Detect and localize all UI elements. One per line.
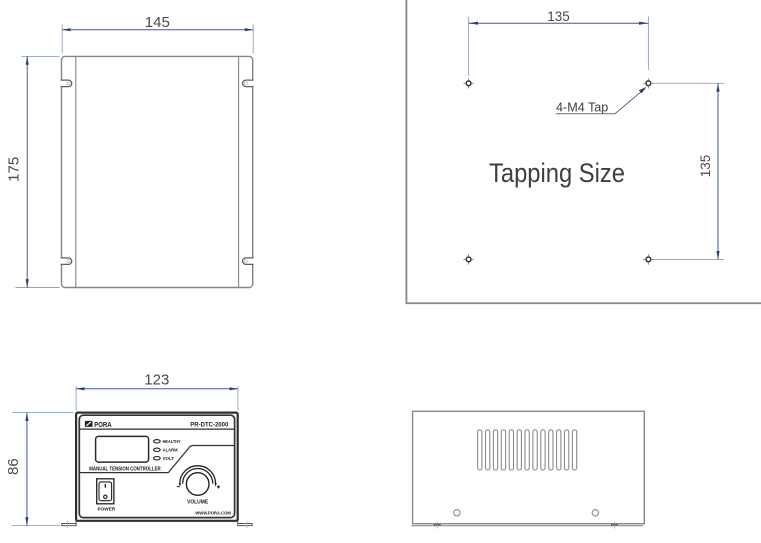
svg-text:PORA: PORA bbox=[94, 420, 112, 429]
svg-text:175: 175 bbox=[5, 157, 22, 182]
svg-text:VOLUME: VOLUME bbox=[187, 499, 209, 505]
svg-text:WWW.PORA.COM: WWW.PORA.COM bbox=[195, 511, 231, 516]
svg-text:PR-DTC-2000: PR-DTC-2000 bbox=[190, 421, 228, 428]
svg-text:123: 123 bbox=[144, 372, 169, 389]
svg-text:VOLT: VOLT bbox=[163, 456, 175, 461]
svg-text:Tapping Size: Tapping Size bbox=[489, 158, 625, 188]
svg-text:135: 135 bbox=[547, 9, 570, 24]
svg-text:86: 86 bbox=[5, 458, 22, 475]
svg-text:135: 135 bbox=[698, 155, 713, 178]
svg-text:145: 145 bbox=[145, 14, 170, 31]
svg-text:HEALTHY: HEALTHY bbox=[163, 439, 181, 444]
svg-text:MANUAL TENSION CONTROLLER: MANUAL TENSION CONTROLLER bbox=[89, 466, 161, 472]
svg-text:4-M4 Tap: 4-M4 Tap bbox=[556, 101, 608, 115]
svg-text:ALARM: ALARM bbox=[163, 448, 178, 453]
svg-text:POWER: POWER bbox=[98, 507, 116, 512]
